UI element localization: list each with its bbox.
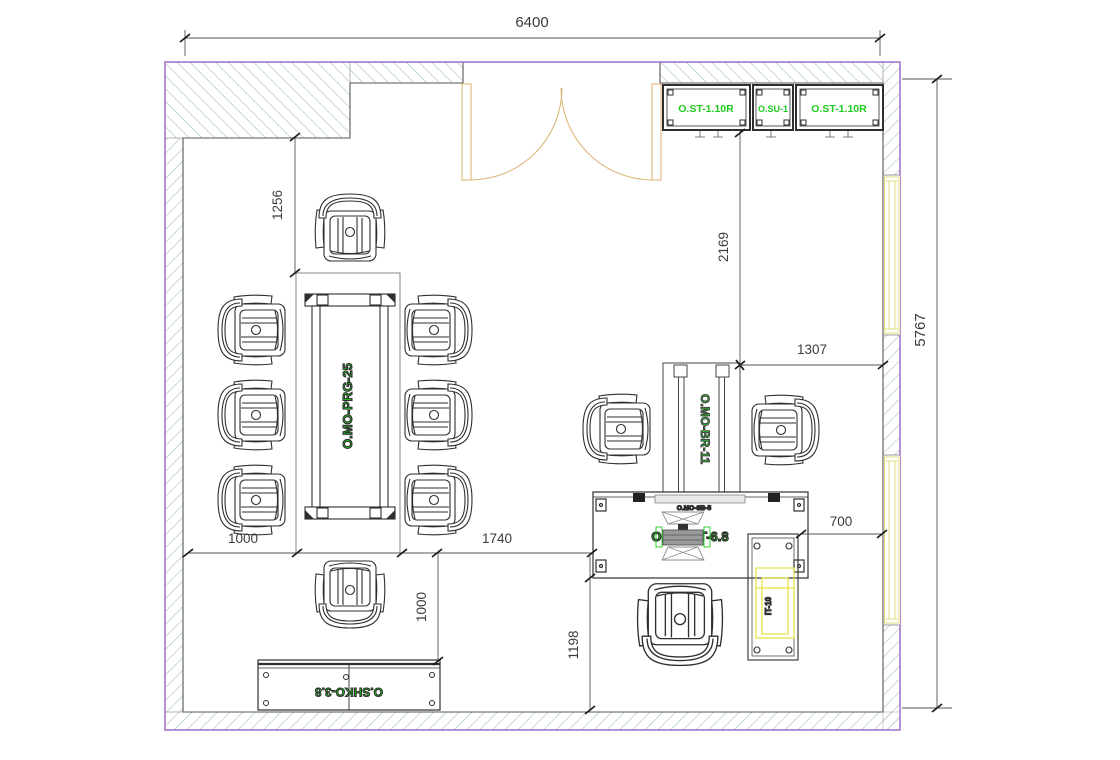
chair: [405, 295, 472, 365]
meeting-table: O.MO-PRG-25: [305, 294, 395, 519]
top-cabinets: O.ST-1.10R O.SU-1 O.ST-1.10R: [663, 85, 883, 137]
sideboard-label: O.SHKO-3.8: [315, 685, 383, 699]
svg-text:1198: 1198: [566, 630, 581, 659]
double-door: [462, 84, 661, 180]
svg-text:1000: 1000: [414, 592, 429, 622]
wall-top-left-strip: [350, 62, 463, 83]
svg-text:1256: 1256: [270, 190, 285, 220]
svg-text:1000: 1000: [228, 531, 258, 546]
pc-tower: [756, 568, 794, 638]
dim-bottom-chain: 1000 1740: [183, 531, 597, 557]
meeting-table-label: O.MO-PRG-25: [340, 363, 355, 449]
chair: [218, 380, 285, 450]
chair: [405, 380, 472, 450]
dim-height-right: 5767: [902, 75, 952, 712]
svg-text:1740: 1740: [482, 531, 512, 546]
floor-plan-canvas: O.ST-1.10R O.SU-1 O.ST-1.10R O.MO-PRG-25…: [0, 0, 1120, 760]
wall-bottom: [165, 712, 900, 730]
it-unit-label: IT-10: [764, 596, 773, 615]
svg-text:2169: 2169: [716, 232, 731, 262]
br-zone-label: O.MO-BR-11: [698, 394, 712, 464]
door-swing-right: [561, 88, 652, 180]
dim-door-to-zone: 2169: [716, 129, 745, 370]
cabinet-su-label: O.SU-1: [758, 104, 788, 114]
svg-text:700: 700: [830, 514, 853, 529]
dim-desk-to-wall: 1198: [566, 556, 595, 714]
task-chair: [638, 584, 723, 666]
dim-width-top: 6400: [180, 14, 885, 56]
chair: [752, 395, 819, 465]
wall-top-right-strip: [660, 62, 883, 83]
wall-left: [165, 138, 183, 712]
svg-text:6400: 6400: [515, 14, 548, 31]
wall-block-top-left: [165, 62, 350, 138]
desk: O.MO-SB-5 O.MO-ST-6.8: [593, 492, 808, 578]
workstation-equipment: [656, 512, 710, 560]
wall-right: [883, 62, 900, 730]
door-leaf-right: [652, 84, 661, 180]
door-leaf-left: [462, 84, 471, 180]
chair: [218, 465, 285, 535]
window-lower: [883, 455, 900, 625]
dim-left-clearance: 1256: [270, 133, 300, 277]
dim-table-to-cabinet: 1000: [414, 553, 443, 665]
dim-zone-to-wall: 1307: [740, 342, 888, 369]
desk-return: IT-10: [748, 534, 798, 660]
chair: [315, 561, 385, 628]
svg-text:1307: 1307: [797, 342, 827, 357]
svg-text:5767: 5767: [912, 313, 929, 346]
cabinet-st-left-label: O.ST-1.10R: [678, 103, 734, 115]
chair: [218, 295, 285, 365]
chair: [583, 394, 650, 464]
desk-accessory-label: O.MO-SB-5: [677, 505, 712, 512]
chair: [405, 465, 472, 535]
dim-return-width: 700: [796, 514, 887, 538]
window-upper: [883, 175, 900, 335]
sideboard: O.SHKO-3.8: [258, 660, 440, 710]
br-zone: O.MO-BR-11: [663, 363, 740, 492]
door-swing-left: [471, 88, 562, 180]
cabinet-st-right-label: O.ST-1.10R: [811, 103, 867, 115]
chair: [315, 194, 385, 261]
floor-plan: O.ST-1.10R O.SU-1 O.ST-1.10R O.MO-PRG-25…: [0, 0, 1120, 760]
